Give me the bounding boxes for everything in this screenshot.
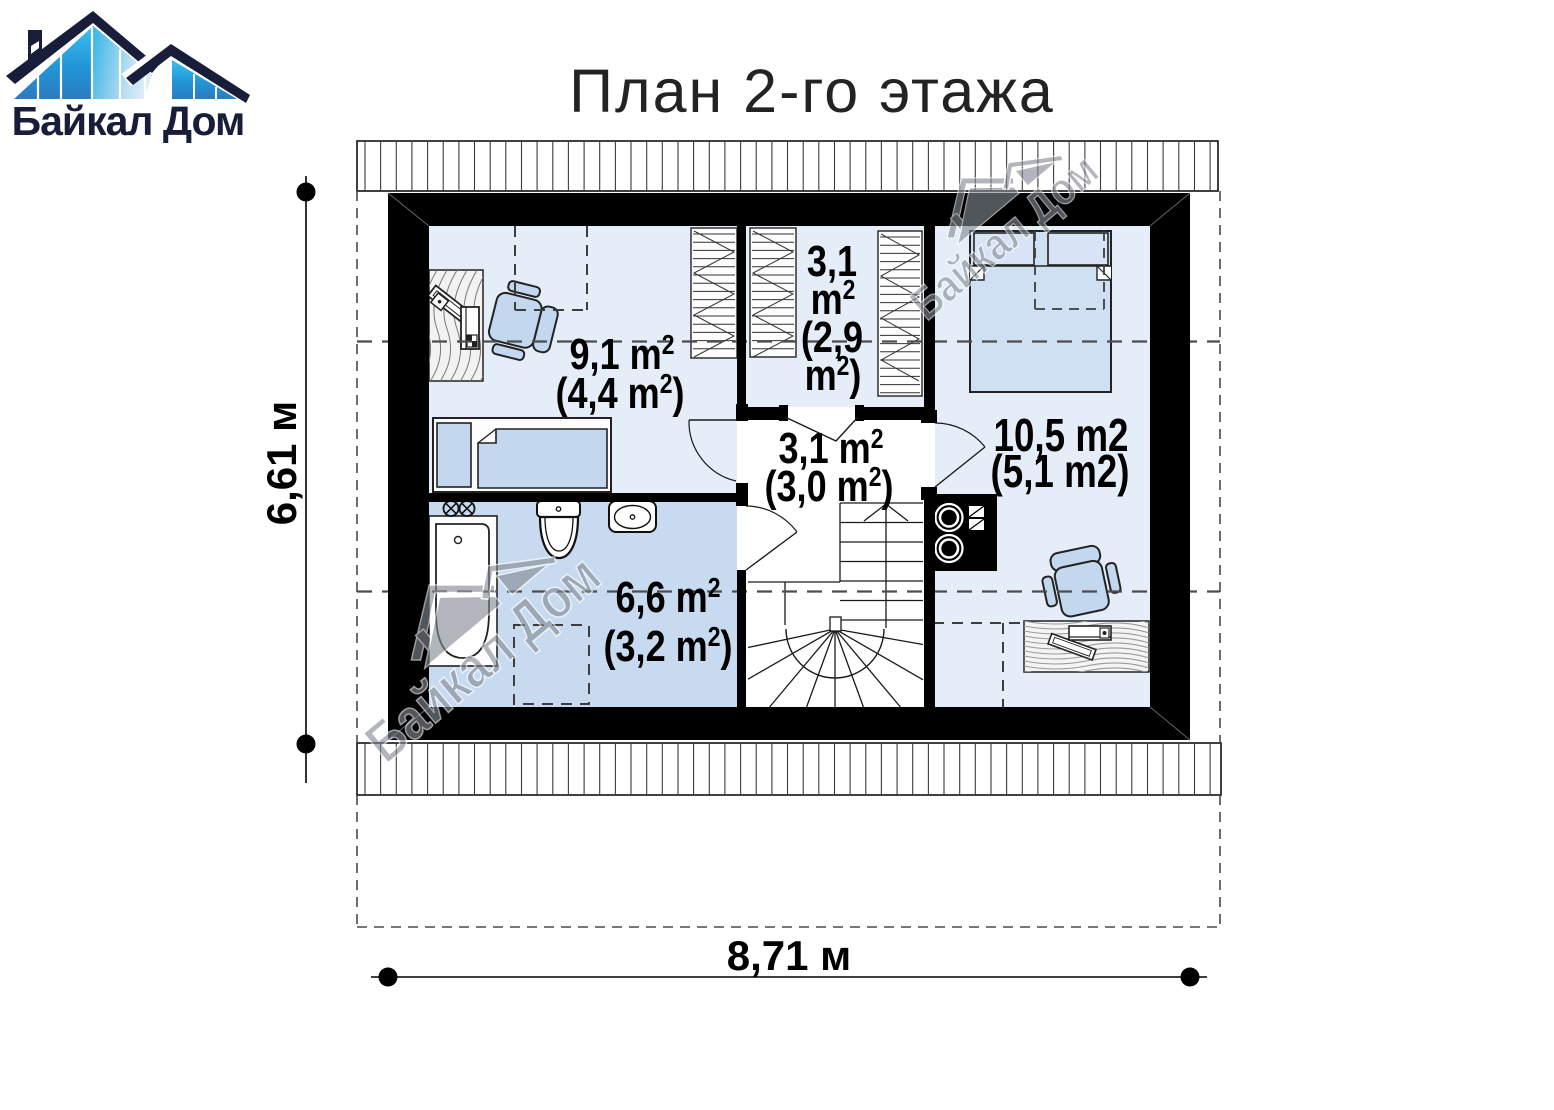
svg-text:6,61 м: 6,61 м	[258, 401, 305, 525]
svg-text:m2): m2)	[805, 351, 862, 400]
svg-text:(5,1 m2): (5,1 m2)	[990, 445, 1129, 497]
svg-text:Байкал Дом: Байкал Дом	[12, 98, 245, 144]
svg-text:План 2-го этажа: План 2-го этажа	[569, 57, 1055, 125]
svg-text:8,71 м: 8,71 м	[727, 932, 851, 979]
svg-text:6,6 m2: 6,6 m2	[615, 573, 720, 622]
